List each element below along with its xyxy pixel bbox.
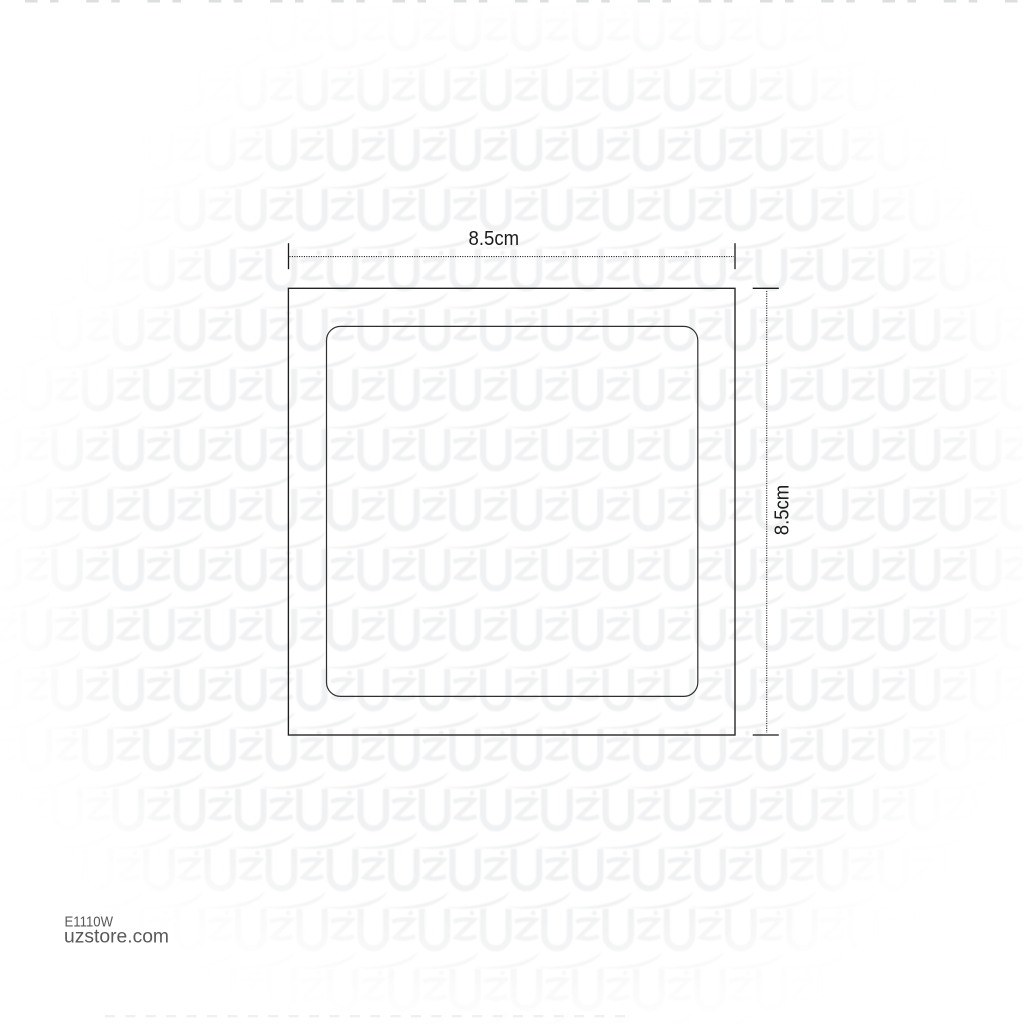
svg-text:uzstore.com: uzstore.com	[64, 925, 169, 947]
svg-text:8.5cm: 8.5cm	[469, 227, 520, 250]
svg-text:8.5cm: 8.5cm	[771, 485, 794, 536]
